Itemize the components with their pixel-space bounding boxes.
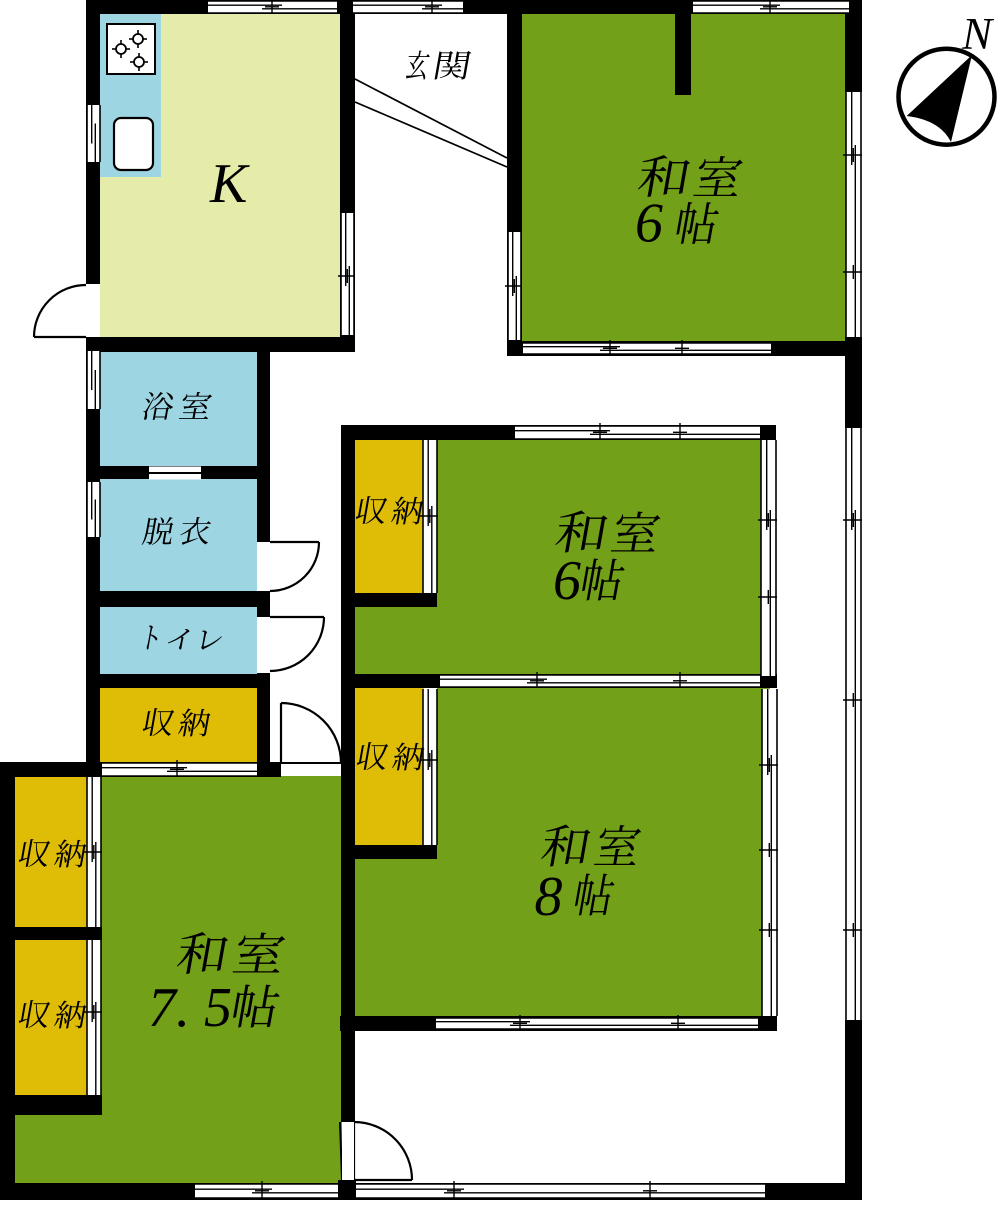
svg-text:7. 5: 7. 5	[148, 977, 232, 1039]
svg-text:N: N	[961, 9, 995, 59]
svg-text:8: 8	[535, 866, 563, 928]
svg-text:6: 6	[553, 550, 581, 612]
svg-text:K: K	[209, 153, 250, 215]
svg-text:6: 6	[635, 193, 663, 255]
